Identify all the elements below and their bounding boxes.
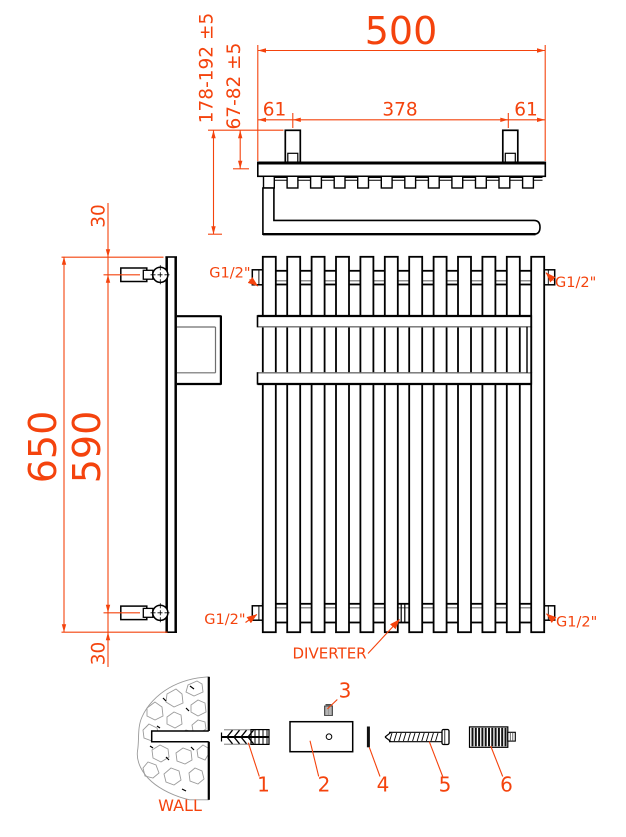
- dim-overall-width: 500: [365, 9, 438, 53]
- part-number-2: 2: [318, 773, 331, 797]
- part-2-bracket-plate: [290, 722, 353, 752]
- label-wall: WALL: [158, 796, 202, 815]
- front-top-collector: [263, 271, 544, 285]
- part-1-wall-plug: [222, 730, 270, 745]
- dim-bracket-offset-right: 61: [514, 100, 538, 121]
- part-number-1: 1: [257, 773, 270, 797]
- dim-overall-height: 650: [21, 411, 65, 484]
- radiator-tubes: [263, 257, 544, 632]
- top-view-tube-sections: [264, 176, 534, 188]
- top-view: [258, 130, 546, 234]
- top-view-towel-rail: [263, 188, 540, 234]
- part-number-6: 6: [500, 773, 513, 797]
- side-view-towel-rail: [177, 316, 222, 385]
- label-conn-top-left: G1/2": [209, 266, 250, 282]
- radiator-technical-drawing: 500 61 378 61 178-192 ±5 67-82 ±5 650 59…: [0, 0, 626, 837]
- label-conn-bottom-right: G1/2": [556, 615, 597, 631]
- part-number-4: 4: [377, 773, 390, 797]
- dimension-lines: [62, 45, 555, 777]
- front-bottom-collector: [263, 604, 544, 623]
- part-6-sleeve: [470, 727, 516, 747]
- dim-wall-to-tube-axis: 67-82 ±5: [224, 43, 245, 130]
- label-diverter: DIVERTER: [293, 645, 367, 663]
- part-4-spacer: [367, 727, 370, 748]
- dim-bracket-spacing: 378: [382, 100, 417, 121]
- front-view: [252, 257, 554, 632]
- label-conn-bottom-left: G1/2": [204, 612, 245, 628]
- side-view: [121, 257, 222, 632]
- drawing-canvas: 500 61 378 61 178-192 ±5 67-82 ±5 650 59…: [0, 0, 626, 837]
- part-5-screw: [385, 730, 449, 745]
- part-number-3: 3: [339, 679, 352, 703]
- part-number-5: 5: [439, 773, 452, 797]
- dim-bottom-connection-offset: 30: [89, 642, 110, 666]
- part-3-grub-screw: [325, 705, 333, 716]
- dim-top-connection-offset: 30: [89, 204, 110, 228]
- label-conn-top-right: G1/2": [555, 275, 596, 291]
- dim-connection-spacing: 590: [65, 411, 109, 484]
- dim-wall-to-rail: 178-192 ±5: [197, 13, 218, 123]
- dim-bracket-offset-left: 61: [263, 100, 287, 121]
